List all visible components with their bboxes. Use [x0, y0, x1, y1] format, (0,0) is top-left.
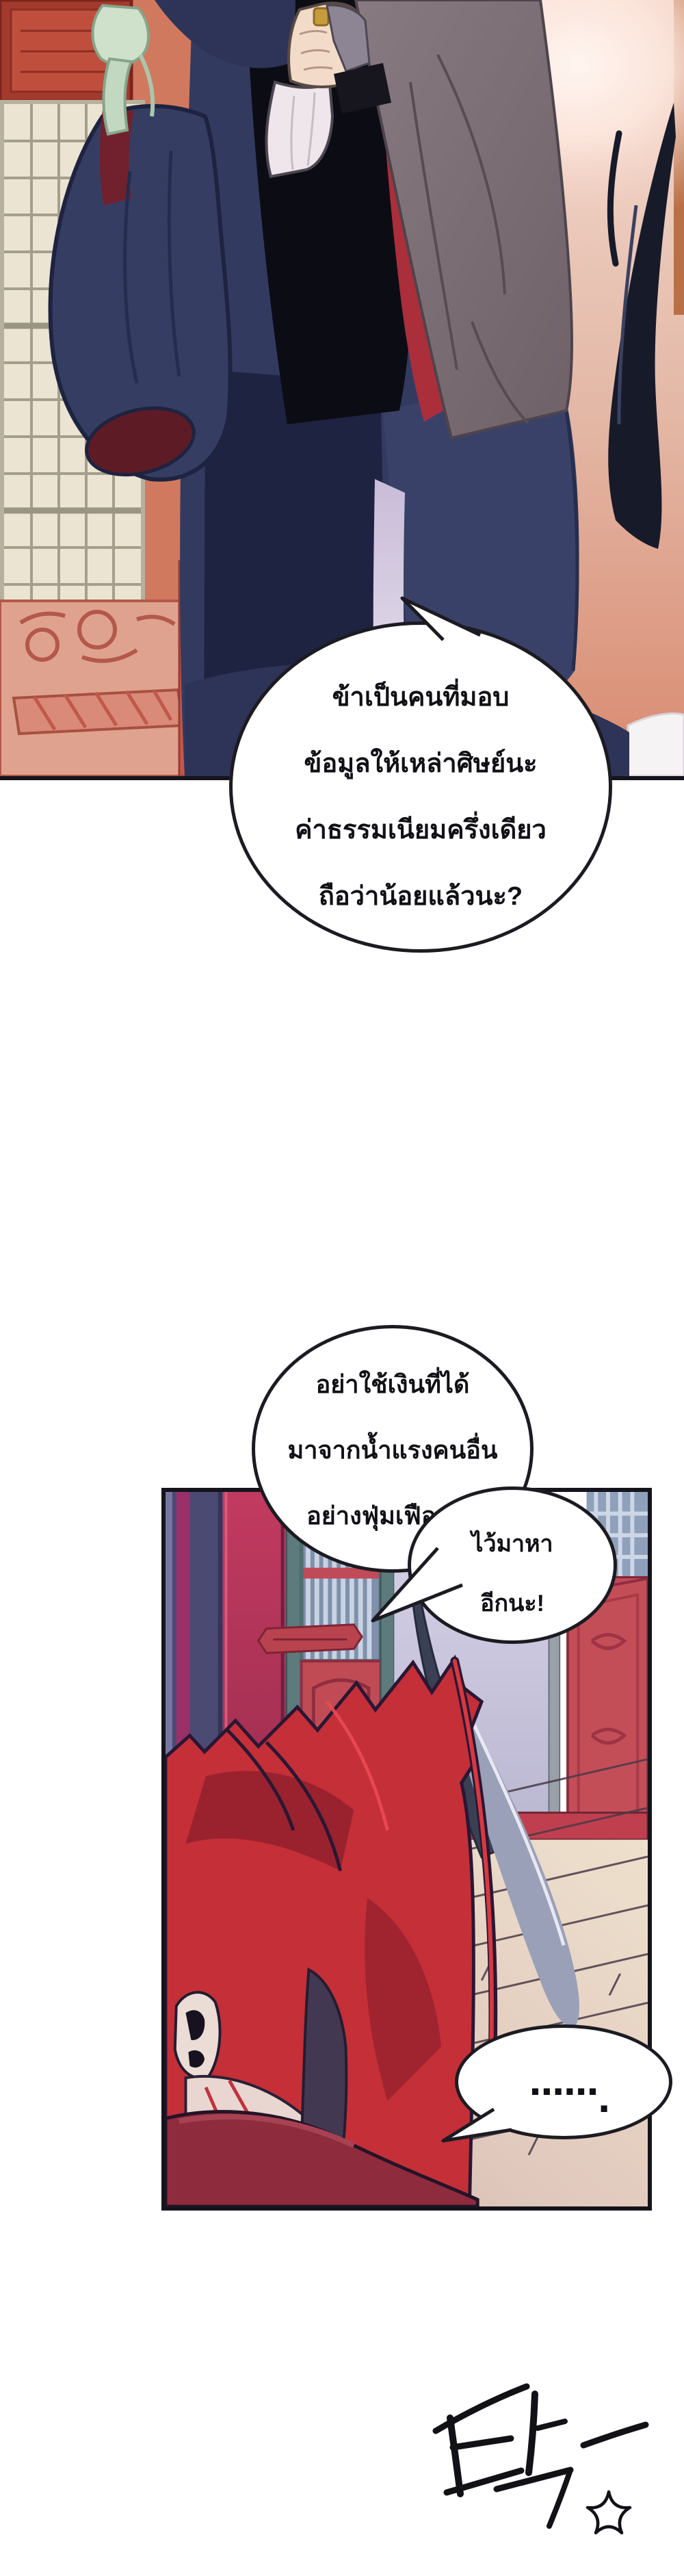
- sfx-dash: [583, 2425, 646, 2445]
- bubble-3-tail: [352, 1540, 475, 1629]
- sfx-tak-sound-effect: [417, 2368, 663, 2553]
- white-under-robe-hem: [628, 714, 684, 776]
- speech-bubble-master-1: ข้าเป็นคนที่มอบ ข้อมูลให้เหล่าศิษย์นะ ค่…: [229, 621, 612, 953]
- bubble-1-line-2: ข้อมูลให้เหล่าศิษย์นะ: [304, 731, 537, 797]
- sparkle-star-icon: [588, 2492, 630, 2533]
- ellipsis-dots: ......: [529, 2073, 598, 2091]
- bubble-4-tail: [434, 2098, 523, 2149]
- bubble-1-line-1: ข้าเป็นคนที่มอบ: [332, 665, 510, 731]
- bubble-2-line-1: อย่าใช้เงินที่ได้: [316, 1352, 470, 1417]
- bubble-3-line-1: ไว้มาหา: [471, 1515, 553, 1574]
- bubble-3-line-2: อีกนะ!: [480, 1574, 544, 1634]
- bubble-1-line-4: ถือว่าน้อยแล้วนะ?: [319, 864, 523, 930]
- bubble-2-line-2: มาจากน้ำแรงคนอื่น: [288, 1417, 498, 1483]
- ellipsis-period: .: [598, 2094, 610, 2100]
- bubble-1-line-3: ค่าธรรมเนียมครึ่งเดียว: [295, 797, 547, 864]
- bubble-1-tail: [383, 589, 492, 650]
- gold-ring: [314, 8, 328, 25]
- comic-page: ข้าเป็นคนที่มอบ ข้อมูลให้เหล่าศิษย์นะ ค่…: [0, 0, 684, 2576]
- ornate-door-bottom-left: [0, 601, 192, 776]
